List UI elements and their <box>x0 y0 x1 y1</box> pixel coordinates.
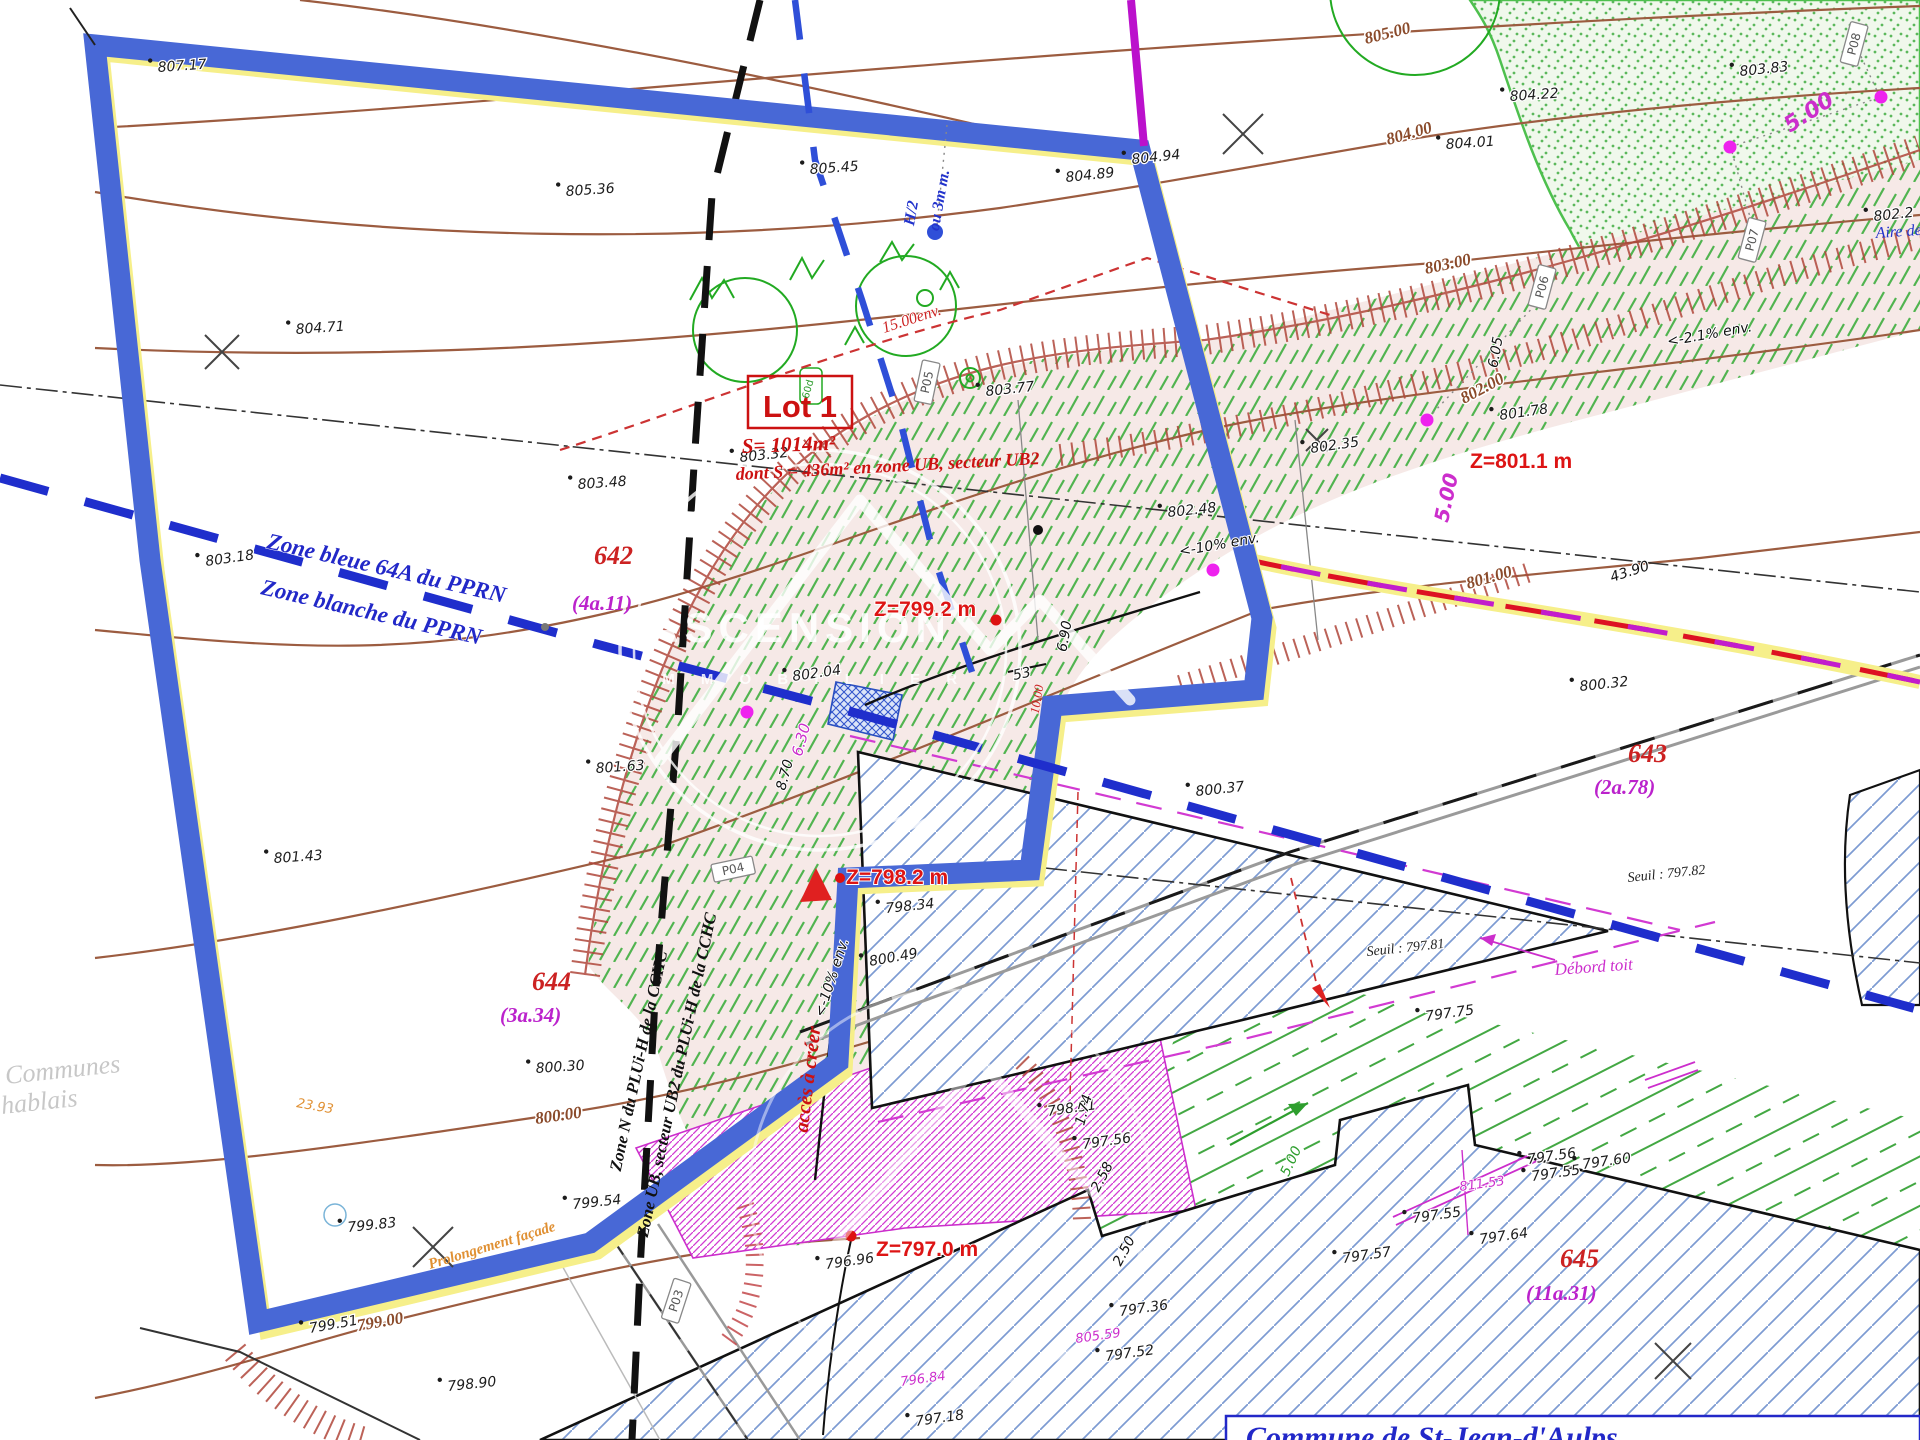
svg-text:807.17: 807.17 <box>157 57 207 76</box>
parcel-area: (11a.31) <box>1526 1281 1597 1305</box>
svg-text:Z=798.2 m: Z=798.2 m <box>846 866 948 889</box>
svg-text:800.30: 800.30 <box>535 1058 585 1077</box>
svg-text:804.71: 804.71 <box>295 319 345 338</box>
svg-text:805.45: 805.45 <box>809 159 859 178</box>
platform-elevation-label: Z=798.2 m <box>846 866 948 889</box>
lot-area-label: S= 1014m² <box>741 431 836 458</box>
lot-title: Lot 1 <box>763 389 837 424</box>
svg-text:803.48: 803.48 <box>577 474 627 493</box>
svg-text:Aire de: Aire de <box>1874 222 1920 242</box>
svg-text:Commune de St-Jean-d'Aulps: Commune de St-Jean-d'Aulps <box>1246 1421 1618 1440</box>
svg-text:643: 643 <box>1628 739 1667 768</box>
svg-text:642: 642 <box>594 541 633 570</box>
building-neighbor-east <box>1845 770 1920 1005</box>
platform-elevation-label: Z=797.0 m <box>876 1238 978 1261</box>
svg-text:804.01: 804.01 <box>1445 134 1495 153</box>
svg-text:805.36: 805.36 <box>565 181 615 200</box>
svg-text:ASCENSION: ASCENSION <box>648 604 952 651</box>
svg-text:645: 645 <box>1560 1244 1599 1273</box>
blue-note: Aire de <box>1874 222 1920 242</box>
parcel-number: 645 <box>1560 1244 1599 1273</box>
parcel-area: (3a.34) <box>500 1003 561 1027</box>
svg-text:(3a.34): (3a.34) <box>500 1003 561 1027</box>
parcel-number: 643 <box>1628 739 1667 768</box>
parcel-area: (2a.78) <box>1594 775 1655 799</box>
parcel-number: 644 <box>532 967 571 996</box>
svg-text:Lot 1: Lot 1 <box>763 389 837 424</box>
svg-text:Z=801.1 m: Z=801.1 m <box>1470 450 1572 473</box>
watermark-subtitle: I M M O B I L I E R <box>632 671 968 688</box>
svg-text:804.22: 804.22 <box>1509 86 1559 105</box>
svg-text:Z=797.0 m: Z=797.0 m <box>876 1238 978 1261</box>
svg-text:801.43: 801.43 <box>273 848 323 867</box>
watermark-title: ASCENSION <box>648 604 952 651</box>
platform-elevation-label: Z=801.1 m <box>1470 450 1572 473</box>
svg-text:801.63: 801.63 <box>595 758 645 777</box>
svg-text:644: 644 <box>532 967 571 996</box>
parcel-area: (4a.11) <box>572 591 632 615</box>
svg-text:(4a.11): (4a.11) <box>572 591 632 615</box>
cadastral-map: 807.17805.36805.45804.71804.89804.94804.… <box>0 0 1920 1440</box>
svg-text:(11a.31): (11a.31) <box>1526 1281 1597 1305</box>
svg-text:S= 1014m²: S= 1014m² <box>741 431 836 458</box>
svg-text:I M M O B I L I E R: I M M O B I L I E R <box>632 671 968 688</box>
commune-title: Commune de St-Jean-d'Aulps <box>1246 1421 1618 1440</box>
survey-plan-page: 807.17805.36805.45804.71804.89804.94804.… <box>0 0 1920 1440</box>
parcel-number: 642 <box>594 541 633 570</box>
svg-text:(2a.78): (2a.78) <box>1594 775 1655 799</box>
